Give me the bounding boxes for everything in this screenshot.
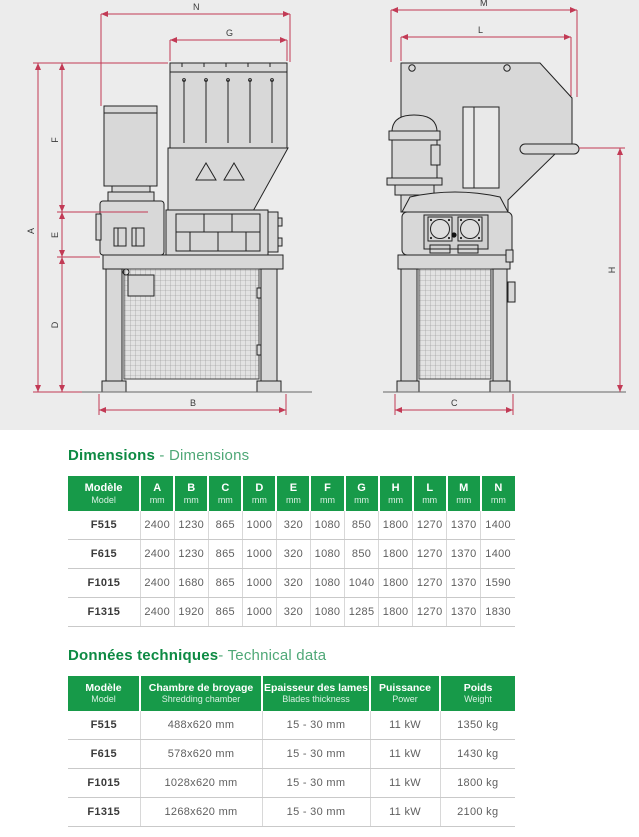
value-cell: 2400 bbox=[140, 598, 174, 627]
technical-header-blades: Epaisseur des lamesBlades thickness bbox=[262, 676, 370, 711]
value-cell: 1800 bbox=[379, 540, 413, 569]
table-row: F1015 1028x620 mm 15 - 30 mm 11 kW 1800 … bbox=[68, 769, 515, 798]
model-cell: F515 bbox=[68, 711, 140, 740]
value-cell: 1270 bbox=[413, 511, 447, 540]
machine-drawings: N G A F E D B bbox=[0, 0, 639, 430]
model-cell: F1315 bbox=[68, 598, 140, 627]
technical-title-fr: Données techniques bbox=[68, 647, 218, 664]
dimensions-header-m: Mmm bbox=[447, 476, 481, 511]
value-cell: 1000 bbox=[242, 598, 276, 627]
value-cell: 2400 bbox=[140, 511, 174, 540]
power-cell: 11 kW bbox=[370, 711, 440, 740]
dim-label-c: C bbox=[451, 398, 458, 408]
dimensions-header-l: Lmm bbox=[413, 476, 447, 511]
value-cell: 865 bbox=[208, 511, 242, 540]
dimensions-header-b: Bmm bbox=[174, 476, 208, 511]
technical-header-chamber: Chambre de broyageShredding chamber bbox=[140, 676, 262, 711]
technical-header-weight: PoidsWeight bbox=[440, 676, 515, 711]
dimensions-header-f: Fmm bbox=[310, 476, 344, 511]
value-cell: 865 bbox=[208, 540, 242, 569]
blades-cell: 15 - 30 mm bbox=[262, 711, 370, 740]
value-cell: 1830 bbox=[481, 598, 515, 627]
dimensions-title-en: Dimensions bbox=[169, 447, 249, 464]
dimensions-header-model: ModèleModel bbox=[68, 476, 140, 511]
table-row: F1315 2400 1920 865 1000 320 1080 1285 1… bbox=[68, 598, 515, 627]
chamber-cell: 488x620 mm bbox=[140, 711, 262, 740]
value-cell: 1230 bbox=[174, 540, 208, 569]
value-cell: 1400 bbox=[481, 540, 515, 569]
value-cell: 1000 bbox=[242, 569, 276, 598]
value-cell: 865 bbox=[208, 598, 242, 627]
dim-label-l: L bbox=[478, 25, 483, 35]
value-cell: 1230 bbox=[174, 511, 208, 540]
value-cell: 1000 bbox=[242, 511, 276, 540]
value-cell: 1370 bbox=[447, 569, 481, 598]
table-row: F615 2400 1230 865 1000 320 1080 850 180… bbox=[68, 540, 515, 569]
technical-section-title: Données techniques- Technical data bbox=[68, 647, 639, 664]
dim-label-d: D bbox=[50, 321, 60, 328]
table-row: F515 2400 1230 865 1000 320 1080 850 180… bbox=[68, 511, 515, 540]
table-row: F1315 1268x620 mm 15 - 30 mm 11 kW 2100 … bbox=[68, 798, 515, 827]
technical-data-table: ModèleModel Chambre de broyageShredding … bbox=[68, 676, 515, 827]
blades-cell: 15 - 30 mm bbox=[262, 740, 370, 769]
value-cell: 1800 bbox=[379, 511, 413, 540]
front-view-drawing bbox=[82, 63, 312, 392]
value-cell: 1040 bbox=[345, 569, 379, 598]
dimensions-header-g: Gmm bbox=[345, 476, 379, 511]
value-cell: 1370 bbox=[447, 540, 481, 569]
dimensions-title-separator: - bbox=[155, 447, 169, 464]
value-cell: 320 bbox=[276, 598, 310, 627]
dimensions-header-n: Nmm bbox=[481, 476, 515, 511]
dim-label-e: E bbox=[50, 232, 60, 238]
dimensions-header-a: Amm bbox=[140, 476, 174, 511]
dimensions-header-d: Dmm bbox=[242, 476, 276, 511]
dimensions-table: ModèleModel Amm Bmm Cmm Dmm Emm Fmm Gmm … bbox=[68, 476, 515, 627]
table-row: F615 578x620 mm 15 - 30 mm 11 kW 1430 kg bbox=[68, 740, 515, 769]
table-row: F1015 2400 1680 865 1000 320 1080 1040 1… bbox=[68, 569, 515, 598]
dimensions-table-header-row: ModèleModel Amm Bmm Cmm Dmm Emm Fmm Gmm … bbox=[68, 476, 515, 511]
value-cell: 320 bbox=[276, 511, 310, 540]
dimensions-header-h: Hmm bbox=[379, 476, 413, 511]
value-cell: 850 bbox=[345, 511, 379, 540]
technical-title-en: Technical data bbox=[228, 647, 327, 664]
value-cell: 1800 bbox=[379, 569, 413, 598]
weight-cell: 1430 kg bbox=[440, 740, 515, 769]
value-cell: 1400 bbox=[481, 511, 515, 540]
technical-title-separator: - bbox=[218, 647, 227, 664]
value-cell: 1370 bbox=[447, 598, 481, 627]
value-cell: 1080 bbox=[310, 569, 344, 598]
value-cell: 1285 bbox=[345, 598, 379, 627]
value-cell: 2400 bbox=[140, 540, 174, 569]
value-cell: 1080 bbox=[310, 598, 344, 627]
blades-cell: 15 - 30 mm bbox=[262, 798, 370, 827]
table-row: F515 488x620 mm 15 - 30 mm 11 kW 1350 kg bbox=[68, 711, 515, 740]
technical-header-model: ModèleModel bbox=[68, 676, 140, 711]
value-cell: 1080 bbox=[310, 540, 344, 569]
dimensions-title-fr: Dimensions bbox=[68, 447, 155, 464]
value-cell: 1680 bbox=[174, 569, 208, 598]
model-cell: F615 bbox=[68, 540, 140, 569]
value-cell: 1270 bbox=[413, 598, 447, 627]
chamber-cell: 578x620 mm bbox=[140, 740, 262, 769]
value-cell: 320 bbox=[276, 540, 310, 569]
dim-label-f: F bbox=[50, 137, 60, 143]
weight-cell: 1800 kg bbox=[440, 769, 515, 798]
blades-cell: 15 - 30 mm bbox=[262, 769, 370, 798]
power-cell: 11 kW bbox=[370, 769, 440, 798]
datasheet-tables: Dimensions - Dimensions ModèleModel Amm … bbox=[0, 430, 639, 827]
value-cell: 850 bbox=[345, 540, 379, 569]
technical-header-power: PuissancePower bbox=[370, 676, 440, 711]
value-cell: 1370 bbox=[447, 511, 481, 540]
dimensions-section-title: Dimensions - Dimensions bbox=[68, 447, 639, 464]
dim-label-m: M bbox=[480, 0, 488, 8]
value-cell: 1800 bbox=[379, 598, 413, 627]
value-cell: 2400 bbox=[140, 569, 174, 598]
model-cell: F615 bbox=[68, 740, 140, 769]
dim-label-a: A bbox=[26, 228, 36, 234]
value-cell: 320 bbox=[276, 569, 310, 598]
side-view-drawing bbox=[383, 63, 626, 392]
dim-label-h: H bbox=[607, 267, 617, 274]
chamber-cell: 1268x620 mm bbox=[140, 798, 262, 827]
chamber-cell: 1028x620 mm bbox=[140, 769, 262, 798]
model-cell: F1015 bbox=[68, 769, 140, 798]
weight-cell: 1350 kg bbox=[440, 711, 515, 740]
dim-label-g: G bbox=[226, 28, 233, 38]
power-cell: 11 kW bbox=[370, 740, 440, 769]
technical-drawing-area: N G A F E D B bbox=[0, 0, 639, 430]
dim-label-n: N bbox=[193, 2, 200, 12]
power-cell: 11 kW bbox=[370, 798, 440, 827]
model-cell: F1315 bbox=[68, 798, 140, 827]
dimensions-header-c: Cmm bbox=[208, 476, 242, 511]
dimensions-header-e: Emm bbox=[276, 476, 310, 511]
value-cell: 1270 bbox=[413, 569, 447, 598]
value-cell: 865 bbox=[208, 569, 242, 598]
value-cell: 1270 bbox=[413, 540, 447, 569]
value-cell: 1590 bbox=[481, 569, 515, 598]
weight-cell: 2100 kg bbox=[440, 798, 515, 827]
value-cell: 1000 bbox=[242, 540, 276, 569]
value-cell: 1080 bbox=[310, 511, 344, 540]
model-cell: F1015 bbox=[68, 569, 140, 598]
dim-label-b: B bbox=[190, 398, 196, 408]
technical-table-header-row: ModèleModel Chambre de broyageShredding … bbox=[68, 676, 515, 711]
model-cell: F515 bbox=[68, 511, 140, 540]
value-cell: 1920 bbox=[174, 598, 208, 627]
